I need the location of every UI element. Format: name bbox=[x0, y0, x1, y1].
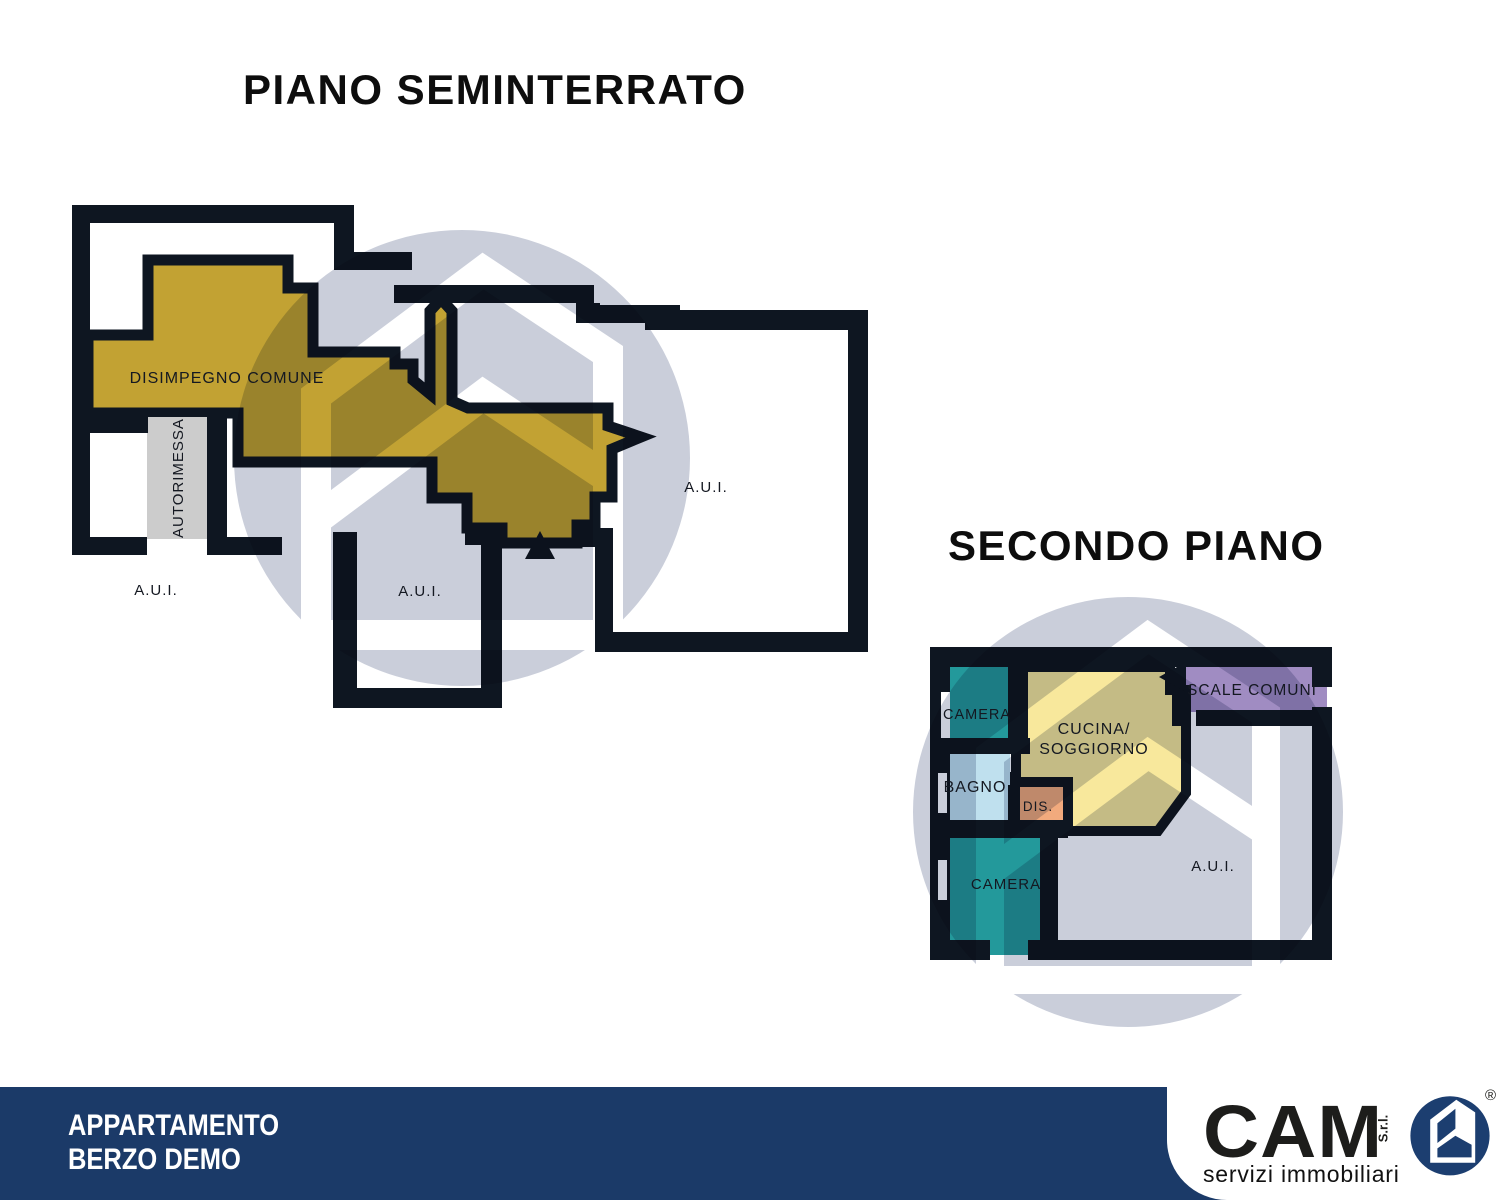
label-aui-right: A.U.I. bbox=[684, 479, 728, 496]
property-title-line2: BERZO DEMO bbox=[68, 1143, 279, 1177]
label-cucina-line2: SOGGIORNO bbox=[1039, 741, 1148, 758]
label-bagno: BAGNO bbox=[944, 779, 1007, 796]
label-aui-center: A.U.I. bbox=[398, 583, 442, 600]
cam-house-logo-icon bbox=[1405, 1089, 1495, 1179]
cam-tagline-text: servizi immobiliari bbox=[1203, 1161, 1400, 1188]
plan-piano-seminterrato: DISIMPEGNO COMUNE AUTORIMESSA A.U.I. A.U… bbox=[72, 205, 868, 708]
label-camera-bottom: CAMERA bbox=[971, 876, 1041, 893]
cam-watermark-icon bbox=[234, 230, 690, 686]
label-aui-second: A.U.I. bbox=[1191, 858, 1235, 875]
cam-watermark-icon bbox=[913, 597, 1343, 1027]
label-scale-comuni: SCALE COMUNI bbox=[1187, 682, 1317, 699]
floor-plan-sheet: PIANO SEMINTERRATO SECONDO PIANO bbox=[0, 0, 1500, 1200]
label-autorimessa: AUTORIMESSA bbox=[170, 418, 187, 538]
logo-panel: CAM S.r.l. ® servizi immobiliari bbox=[1167, 1087, 1500, 1200]
label-cucina-line1: CUCINA/ bbox=[1058, 721, 1131, 738]
label-camera-top: CAMERA bbox=[943, 707, 1011, 723]
label-disimpegno-comune: DISIMPEGNO COMUNE bbox=[130, 370, 325, 387]
title-piano-seminterrato: PIANO SEMINTERRATO bbox=[243, 66, 747, 114]
label-dis: DIS. bbox=[1023, 799, 1053, 814]
cam-srl-text: S.r.l. bbox=[1376, 1109, 1391, 1149]
plan-secondo-piano: CAMERA BAGNO DIS. CUCINA/ SOGGIORNO SCAL… bbox=[913, 597, 1343, 1027]
footer: APPARTAMENTO BERZO DEMO CAM S.r.l. ® ser… bbox=[0, 1087, 1500, 1200]
property-title: APPARTAMENTO BERZO DEMO bbox=[68, 1109, 279, 1177]
registered-mark: ® bbox=[1485, 1087, 1496, 1104]
property-title-line1: APPARTAMENTO bbox=[68, 1109, 279, 1143]
title-secondo-piano: SECONDO PIANO bbox=[948, 522, 1325, 570]
floor-plans-canvas: DISIMPEGNO COMUNE AUTORIMESSA A.U.I. A.U… bbox=[0, 0, 1500, 1200]
label-aui-left: A.U.I. bbox=[134, 582, 178, 599]
